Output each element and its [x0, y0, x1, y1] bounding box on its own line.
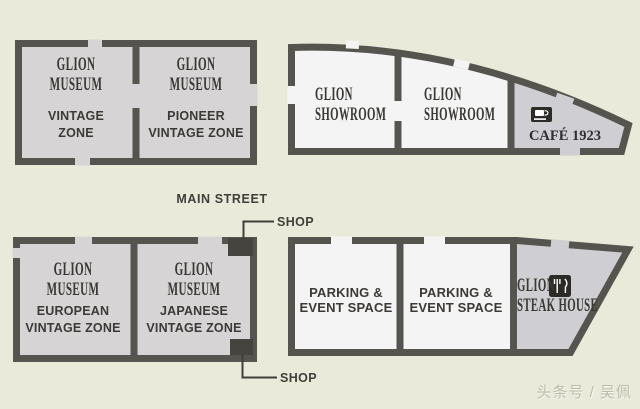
door-gap: [556, 97, 573, 103]
brand-line: GLION: [153, 261, 236, 281]
room-showroom-2-brand: GLION SHOWROOM: [424, 86, 514, 118]
parking-space-2-label: PARKING & EVENT SPACE: [405, 286, 507, 316]
cafe-label: CAFÉ 1923: [520, 128, 610, 145]
shop-label-bottom: SHOP: [280, 371, 320, 385]
door-gap: [454, 63, 469, 67]
zone-line: VINTAGE ZONE: [132, 320, 256, 337]
zone-line: VINTAGE ZONE: [134, 125, 258, 142]
room-vintage-zone-name: VINTAGE ZONE: [20, 108, 132, 142]
steak-house-label: GLION STEAK HOUSE: [517, 277, 597, 309]
door-gap: [331, 237, 352, 245]
zone-line: VINTAGE ZONE: [11, 320, 135, 337]
room-japanese-zone-name: JAPANESE VINTAGE ZONE: [132, 303, 256, 337]
room-european-zone-name: EUROPEAN VINTAGE ZONE: [11, 303, 135, 337]
room-japanese-zone-brand: GLION MUSEUM: [138, 261, 250, 293]
door-gap: [132, 84, 140, 108]
facility-map: GLION MUSEUM VINTAGE ZONE GLION MUSEUM P…: [0, 0, 640, 409]
brand-line: GLION: [155, 56, 238, 76]
door-gap: [198, 237, 222, 245]
brand-line: MUSEUM: [155, 76, 238, 96]
shop-label-top: SHOP: [277, 215, 317, 229]
room-showroom-1-brand: GLION SHOWROOM: [315, 86, 405, 118]
door-gap: [346, 44, 359, 45]
door-gap: [424, 237, 445, 245]
door-gap: [13, 248, 21, 258]
room-european-zone-brand: GLION MUSEUM: [17, 261, 129, 293]
brand-line: GLION: [517, 277, 575, 297]
zone-line: JAPANESE: [132, 303, 256, 320]
parking-line: PARKING &: [405, 286, 507, 301]
main-street-label: MAIN STREET: [160, 192, 284, 206]
door-gap: [551, 243, 569, 244]
parking-space-1-label: PARKING & EVENT SPACE: [295, 286, 397, 316]
brand-line: MUSEUM: [153, 281, 236, 301]
brand-line: STEAK HOUSE: [517, 297, 575, 317]
brand-line: GLION: [32, 261, 115, 281]
shop-marker-north: [228, 238, 253, 256]
door-gap: [75, 237, 92, 245]
zone-line: PIONEER: [134, 108, 258, 125]
coffee-cup-icon: [531, 107, 552, 122]
room-vintage-zone-brand: GLION MUSEUM: [20, 56, 132, 88]
parking-line: EVENT SPACE: [405, 301, 507, 316]
brand-line: MUSEUM: [35, 76, 118, 96]
room-pioneer-zone-name: PIONEER VINTAGE ZONE: [134, 108, 258, 142]
room-pioneer-zone-brand: GLION MUSEUM: [140, 56, 252, 88]
brand-line: GLION: [424, 86, 489, 106]
brand-line: GLION: [315, 86, 380, 106]
zone-line: ZONE: [20, 125, 132, 142]
brand-line: GLION: [35, 56, 118, 76]
parking-line: PARKING &: [295, 286, 397, 301]
zone-line: VINTAGE: [20, 108, 132, 125]
brand-line: SHOWROOM: [424, 106, 489, 126]
brand-line: SHOWROOM: [315, 106, 380, 126]
door-gap: [88, 40, 102, 48]
parking-line: EVENT SPACE: [295, 301, 397, 316]
door-gap: [75, 158, 90, 166]
shop-marker-south: [230, 339, 253, 355]
brand-line: MUSEUM: [32, 281, 115, 301]
watermark-text: 头条号 / 吴佩: [460, 381, 632, 402]
zone-line: EUROPEAN: [11, 303, 135, 320]
